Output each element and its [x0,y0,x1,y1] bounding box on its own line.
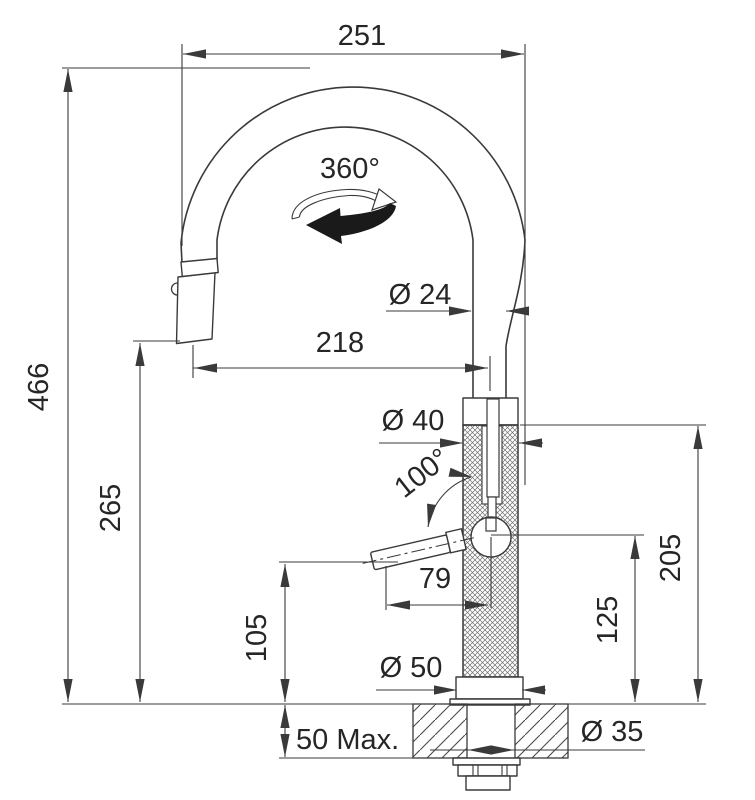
dim-deck-thickness-label: 50 Max. [296,724,399,756]
dim-clearance-height-label: 105 [241,614,273,662]
dim-lever-angle-label: 100° [389,442,456,504]
dim-swivel-angle-label: 360° [320,153,380,185]
dim-body-height-label: 205 [655,534,687,582]
dimension-lines [62,44,706,758]
dim-top-width-label: 251 [338,20,386,52]
rotation-band-cap [292,217,300,219]
mounting-washer [453,758,520,765]
dim-total-height-label: 466 [23,363,55,411]
dim-spout-reach-label: 218 [316,327,364,359]
mounting-nut [458,765,517,776]
dim-lever-length-label: 79 [419,563,451,595]
faucet-body [450,398,530,705]
dim-spray-height-label: 265 [95,484,127,532]
base-cylinder [456,677,523,699]
dim-hole-diameter-label: Ø 35 [581,716,644,748]
spray-head-body [177,273,216,344]
dimension-labels: 251 466 360° Ø 24 218 265 Ø 40 100° 205 … [23,20,687,756]
dim-265-lines [133,341,180,702]
pivot-notch [486,518,496,531]
cartridge-stem [487,399,499,497]
shank-end [466,776,510,790]
faucet-dimension-drawing: 251 466 360° Ø 24 218 265 Ø 40 100° 205 … [0,0,755,800]
technical-drawing-canvas: 251 466 360° Ø 24 218 265 Ø 40 100° 205 … [0,0,755,800]
spray-head [172,259,219,344]
dim-466-lines [62,68,310,702]
dim-base-diameter-label: Ø 50 [380,652,443,684]
stem-neck [488,497,496,519]
dim-spout-diameter-label: Ø 24 [389,279,452,311]
rotation-360-icon [292,189,396,244]
rotation-arrow-solid [306,203,396,244]
dim-body-diameter-label: Ø 40 [382,405,445,437]
dim-pivot-height-label: 125 [592,596,624,644]
spray-head-collar [181,259,218,277]
